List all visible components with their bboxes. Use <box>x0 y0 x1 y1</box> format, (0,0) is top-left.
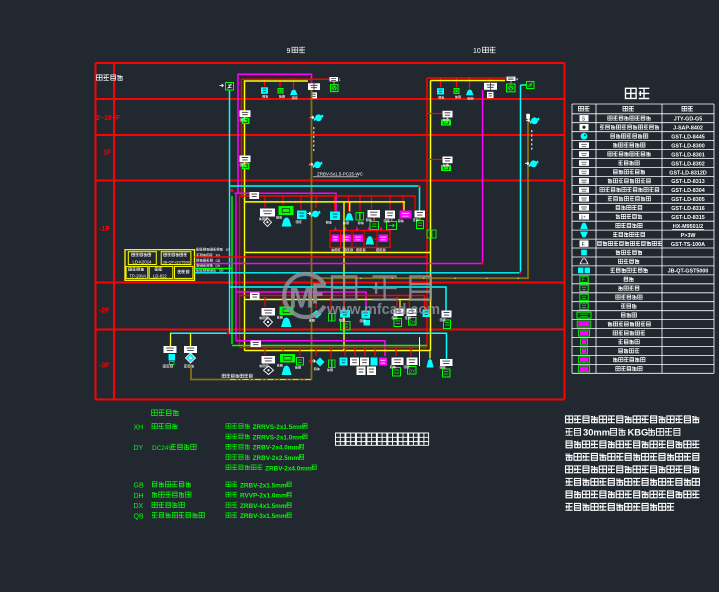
svg-text:GB: GB <box>216 259 221 263</box>
svg-text:DC24V: DC24V <box>152 445 173 452</box>
svg-text:1+: 1+ <box>581 215 587 220</box>
svg-text:www.mfcad.com: www.mfcad.com <box>326 302 440 318</box>
svg-text:-3F: -3F <box>99 363 110 370</box>
svg-text:GST-LD-8315: GST-LD-8315 <box>671 215 705 221</box>
svg-text:ZRBV-3x1.5mm²: ZRBV-3x1.5mm² <box>240 513 289 520</box>
svg-text:DH: DH <box>216 264 221 268</box>
svg-text:JB-QT-GST5000: JB-QT-GST5000 <box>668 269 709 275</box>
svg-text:XH: XH <box>134 425 144 432</box>
svg-text:ZRBV-2x4.0mm²: ZRBV-2x4.0mm² <box>265 465 314 472</box>
svg-text:GST-LD-8305: GST-LD-8305 <box>671 197 705 203</box>
svg-text:GST-LD-8300: GST-LD-8300 <box>671 143 705 149</box>
svg-text:GST-LD-8313: GST-LD-8313 <box>671 179 705 185</box>
svg-text:GST-LD-8302: GST-LD-8302 <box>671 161 705 167</box>
svg-text:ZRBV-2x2.5mm²: ZRBV-2x2.5mm² <box>253 455 302 462</box>
svg-text:-2F: -2F <box>99 308 110 315</box>
svg-text:P>3W: P>3W <box>681 233 697 239</box>
svg-text:GB: GB <box>134 483 144 490</box>
svg-text:ZRBV-5x1.5-PC25-WC: ZRBV-5x1.5-PC25-WC <box>317 172 364 177</box>
svg-text:LD-822: LD-822 <box>153 273 167 278</box>
svg-text:ZRBV-2x4.0mm²: ZRBV-2x4.0mm² <box>253 445 302 452</box>
svg-text:TP-20VA: TP-20VA <box>130 273 147 278</box>
svg-text:GST-LD-8445: GST-LD-8445 <box>671 135 705 141</box>
svg-text:M: M <box>289 282 314 315</box>
svg-text:ZRRVS-2x1.5mm²: ZRRVS-2x1.5mm² <box>253 424 306 431</box>
svg-text:QB: QB <box>134 513 144 520</box>
svg-text:ZRBV-2x1.5mm²: ZRBV-2x1.5mm² <box>240 482 289 489</box>
svg-text:DH: DH <box>134 493 144 500</box>
svg-text:2~18+F: 2~18+F <box>96 115 121 122</box>
svg-text:DY: DY <box>410 320 416 325</box>
svg-text:ZRRVS-2x1.0mm²: ZRRVS-2x1.0mm² <box>253 434 306 441</box>
svg-text:GST-LD-8301: GST-LD-8301 <box>671 152 705 158</box>
svg-text:GST-LD-8312D: GST-LD-8312D <box>669 170 707 176</box>
svg-text:DX: DX <box>134 503 144 510</box>
svg-text:GST-TS-100A: GST-TS-100A <box>671 242 705 248</box>
svg-text:ZRBV-4x1.5mm²: ZRBV-4x1.5mm² <box>240 503 289 510</box>
svg-text:30mm: 30mm <box>583 426 610 437</box>
svg-text:F: F <box>582 242 585 248</box>
svg-text:JTY-GD-G5: JTY-GD-G5 <box>674 117 702 123</box>
svg-text:J-SAP-8402: J-SAP-8402 <box>673 126 703 132</box>
svg-text:RVVP-2x1.0mm²: RVVP-2x1.0mm² <box>240 493 289 500</box>
svg-text:JB-QT-GST500: JB-QT-GST500 <box>163 259 191 264</box>
svg-text:F: F <box>582 278 585 284</box>
svg-text:GST-LD-8316: GST-LD-8316 <box>671 206 705 212</box>
svg-text:10: 10 <box>473 48 481 55</box>
svg-text:GST-LD-8304: GST-LD-8304 <box>671 188 705 194</box>
svg-text:9: 9 <box>287 48 291 55</box>
svg-text:DY: DY <box>409 369 415 374</box>
svg-text:LD-K2014: LD-K2014 <box>133 259 153 264</box>
svg-text:-1F: -1F <box>99 226 110 233</box>
svg-text:KBG: KBG <box>628 426 649 437</box>
svg-text:DY: DY <box>134 445 144 452</box>
svg-text:1F: 1F <box>103 150 112 157</box>
